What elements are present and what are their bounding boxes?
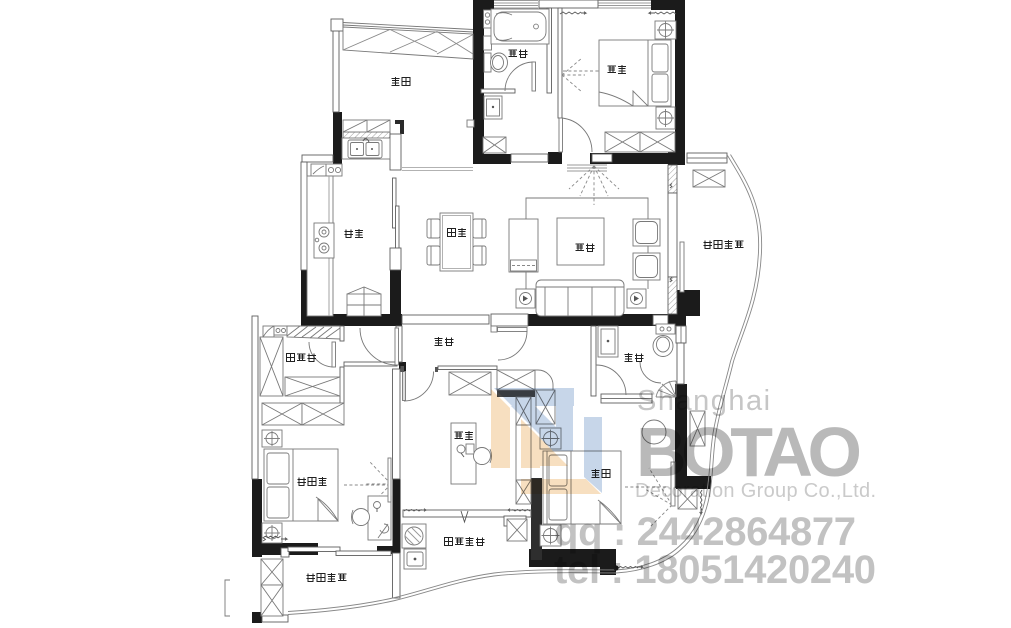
svg-text:Decoration Group Co.,Ltd.: Decoration Group Co.,Ltd. [635,480,876,502]
svg-text:tel : 18051420240: tel : 18051420240 [554,548,876,592]
